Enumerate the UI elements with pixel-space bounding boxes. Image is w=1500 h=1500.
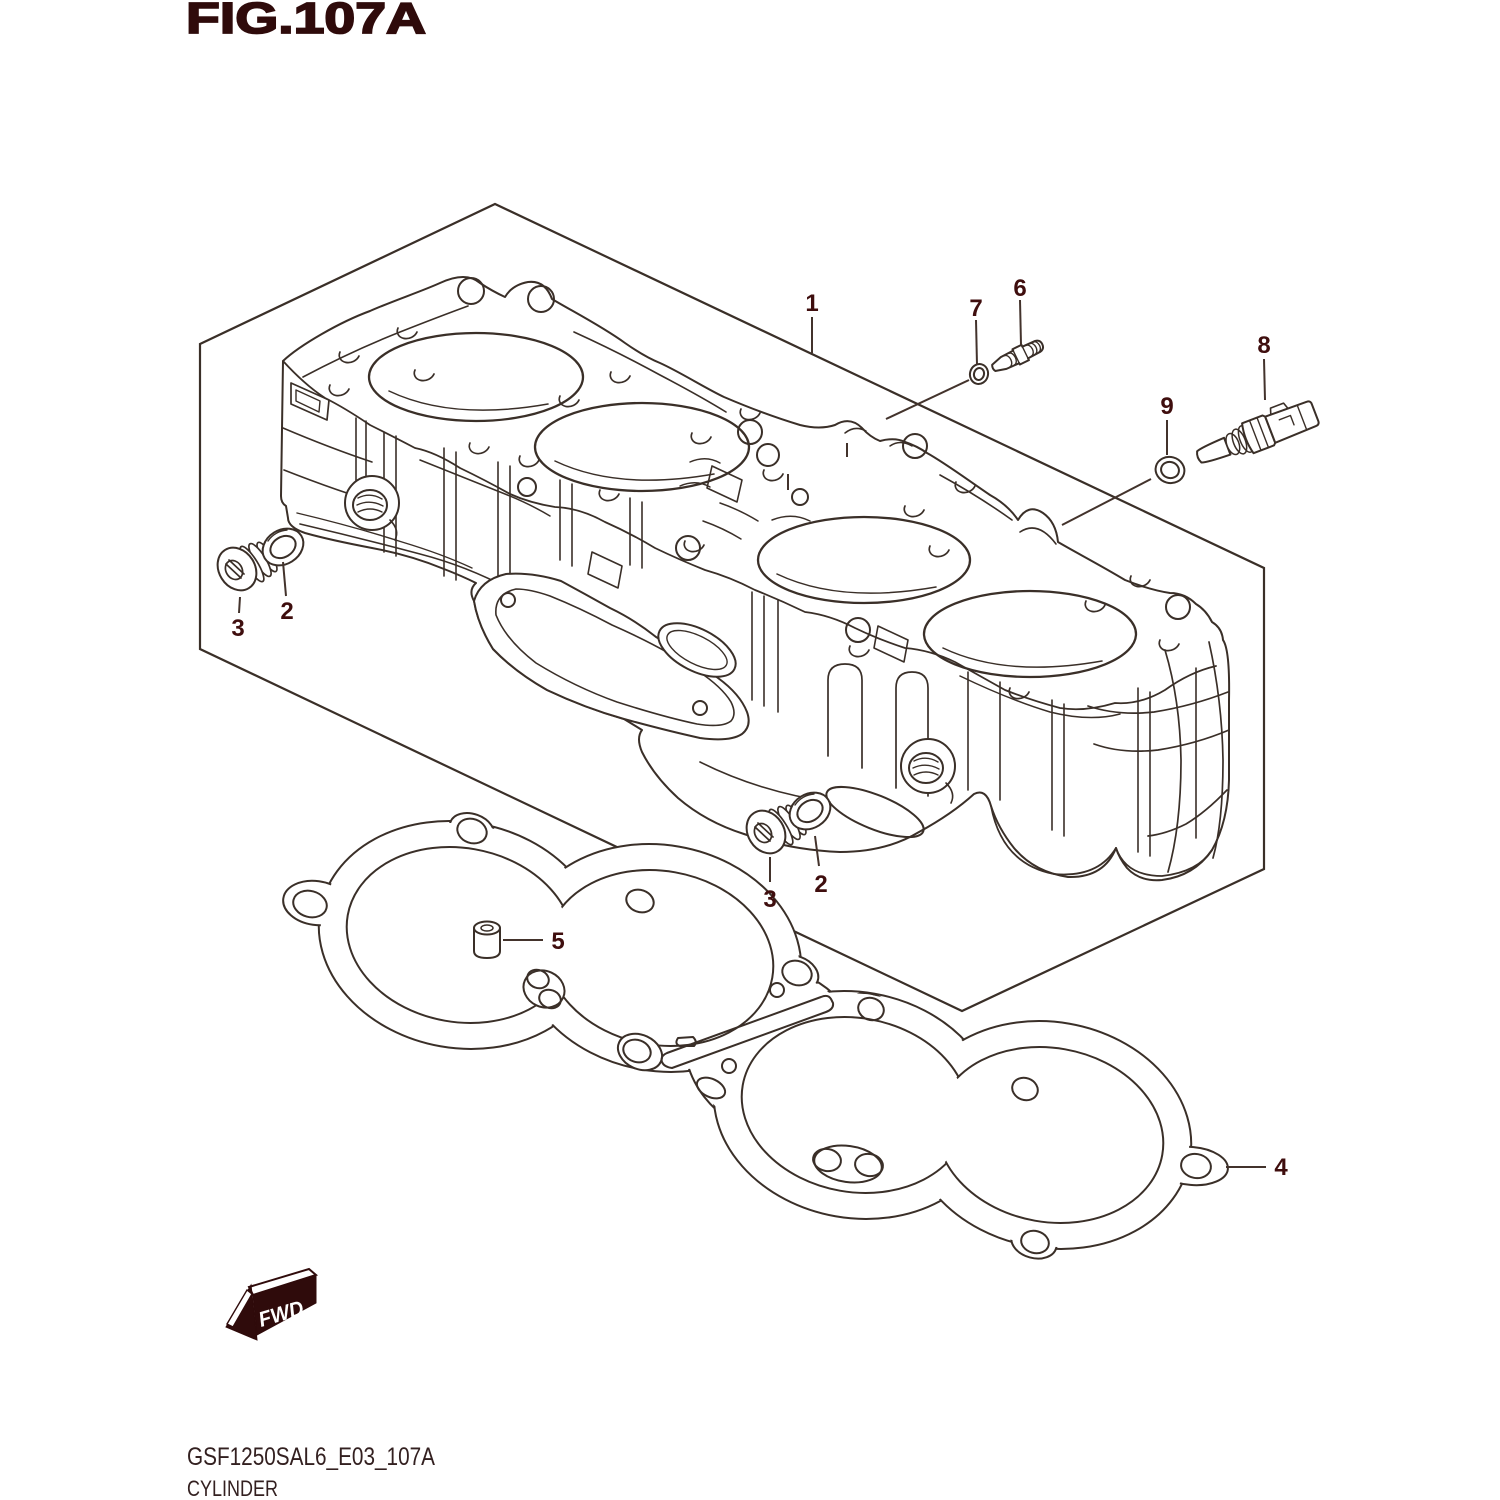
svg-text:5: 5	[551, 928, 564, 955]
svg-text:8: 8	[1257, 332, 1270, 359]
svg-text:2: 2	[814, 871, 827, 898]
svg-text:4: 4	[1274, 1154, 1288, 1181]
svg-text:6: 6	[1013, 275, 1026, 302]
svg-text:9: 9	[1160, 393, 1173, 420]
svg-text:3: 3	[231, 615, 244, 642]
svg-text:CYLINDER: CYLINDER	[187, 1476, 278, 1500]
svg-text:FIG.107A: FIG.107A	[186, 0, 426, 43]
svg-text:1: 1	[805, 290, 818, 317]
svg-text:2: 2	[280, 598, 293, 625]
svg-text:3: 3	[763, 886, 776, 913]
svg-text:7: 7	[969, 295, 982, 322]
svg-text:GSF1250SAL6_E03_107A: GSF1250SAL6_E03_107A	[187, 1443, 435, 1471]
